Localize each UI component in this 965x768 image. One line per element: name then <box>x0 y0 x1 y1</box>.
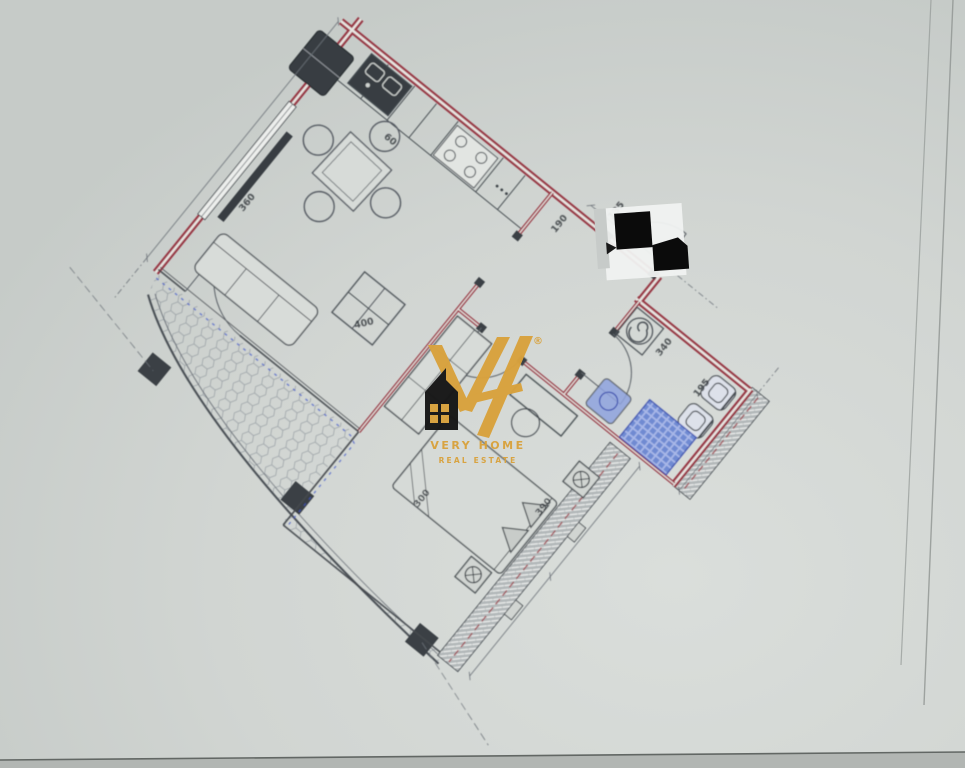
registered-mark: ® <box>533 336 543 347</box>
watermark-line1: VERY HOME <box>430 439 525 452</box>
floor-plan-photo: 360 400 135 140 190 340 195 300 390 60 <box>0 0 965 768</box>
watermark-line2: REAL ESTATE <box>439 456 518 465</box>
floor-plan-canvas: 360 400 135 140 190 340 195 300 390 60 <box>0 0 965 768</box>
redaction-marker <box>594 203 690 281</box>
